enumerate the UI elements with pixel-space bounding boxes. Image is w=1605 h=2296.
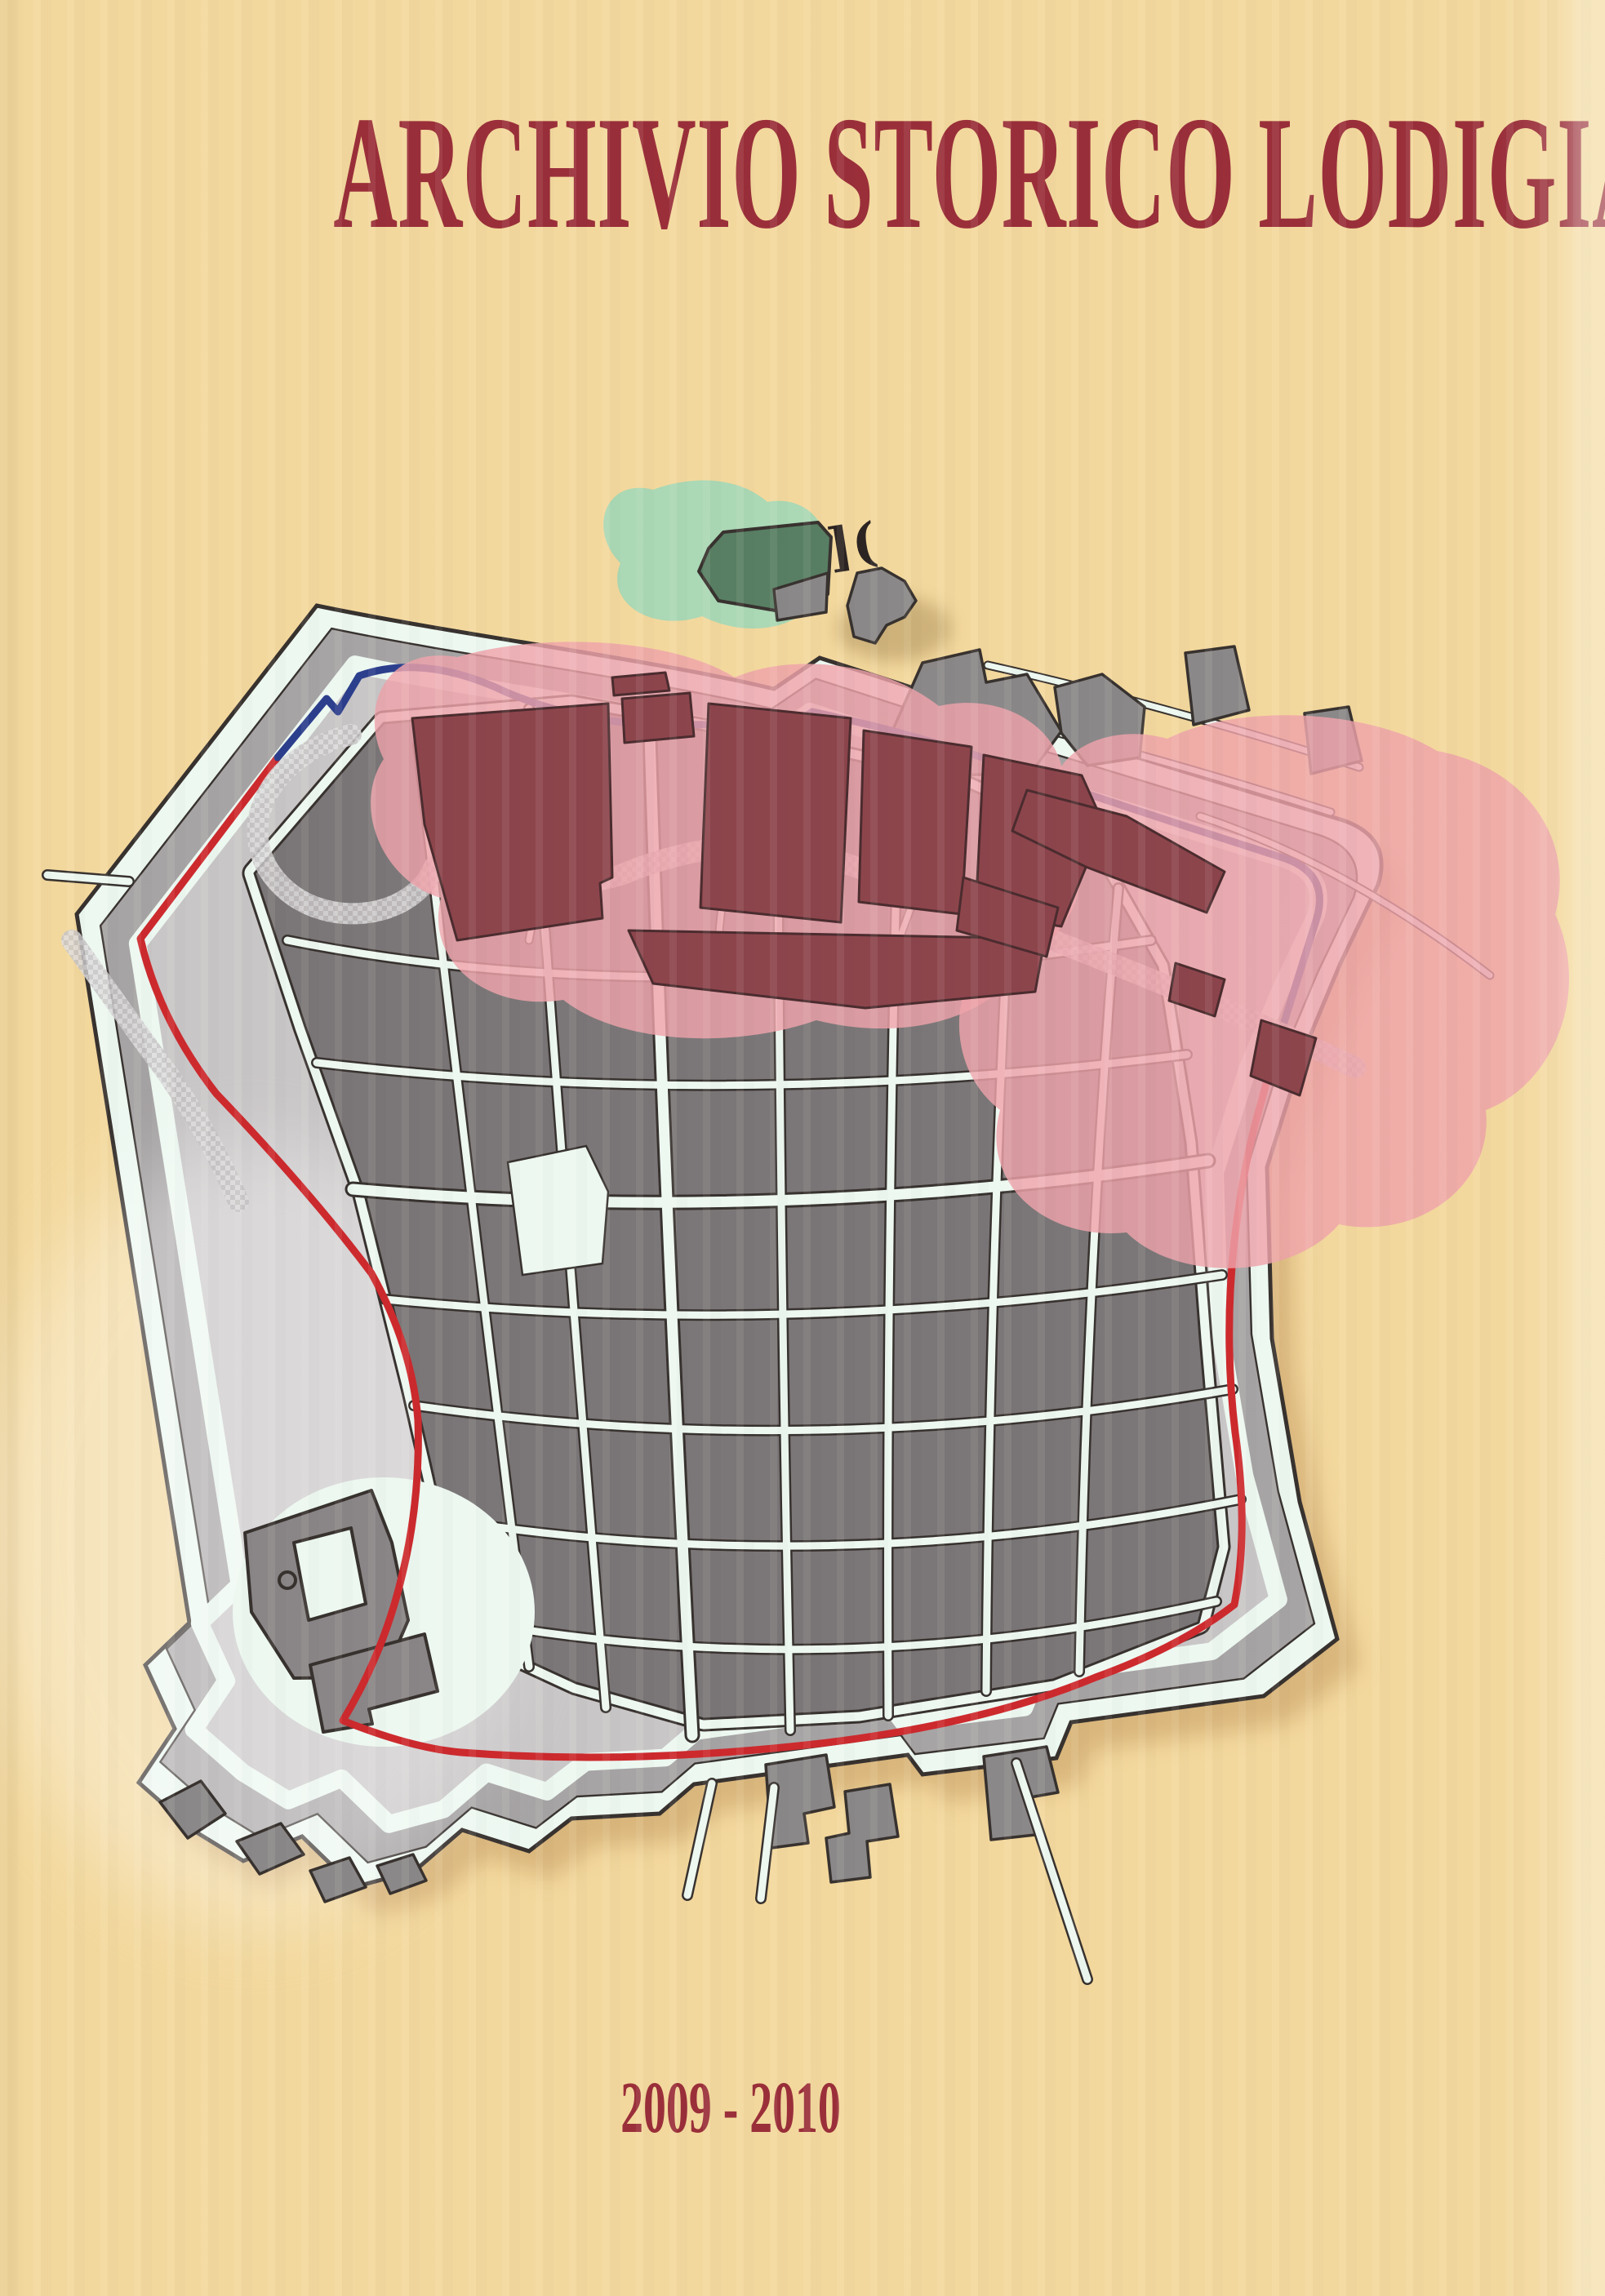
- historic-city-map-illustration: ](: [0, 0, 1605, 2296]
- castle: [233, 1477, 535, 1747]
- bridge-gate-marks-icon: ](: [823, 511, 882, 580]
- book-cover-page: { "cover": { "title": "ARCHIVIO STORICO …: [0, 0, 1605, 2296]
- park-area-north: ](: [603, 481, 951, 661]
- central-plaza: [508, 1146, 608, 1275]
- castle-tower: [279, 1572, 296, 1588]
- page-title: ARCHIVIO STORICO LODIGIANO: [333, 92, 1216, 254]
